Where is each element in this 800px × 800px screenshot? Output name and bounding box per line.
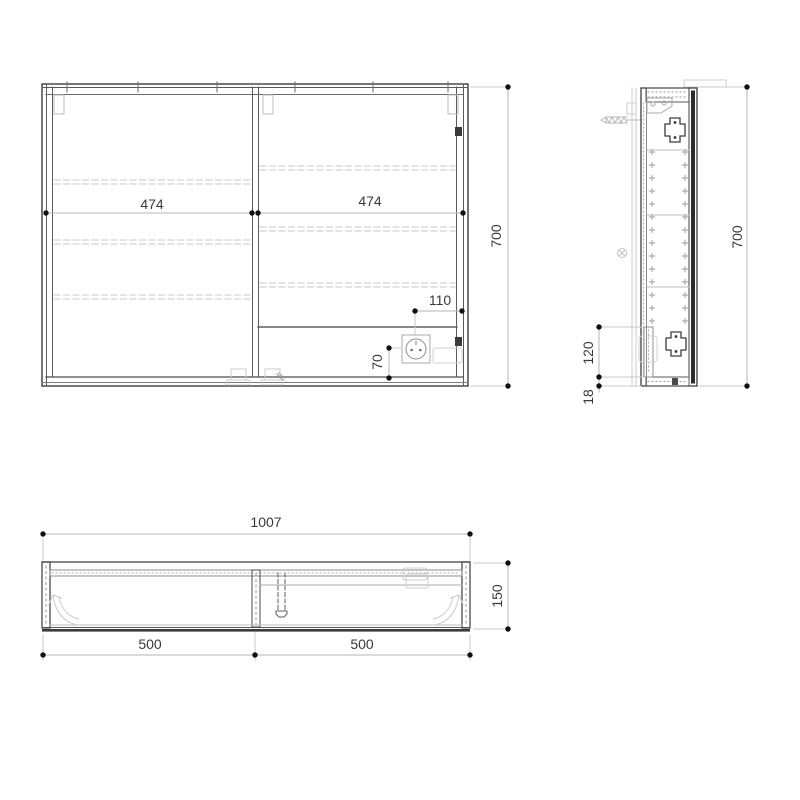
- drawing-linework: [0, 0, 800, 800]
- front-view: [42, 82, 511, 389]
- front-hinge-marks: [54, 95, 458, 114]
- side-cabinet-body: [641, 88, 697, 386]
- dim-label-front-socket-y: 70: [370, 352, 384, 372]
- front-dim-70: [386, 345, 400, 380]
- dim-label-top-depth: 150: [490, 582, 504, 609]
- power-cable-dashed: [276, 573, 287, 617]
- dim-label-top-total-width: 1007: [248, 515, 283, 529]
- side-dim-120-18: [596, 324, 644, 392]
- hinge-cross-icon-bottom: [666, 332, 686, 356]
- dim-label-side-height: 700: [730, 223, 744, 250]
- side-driver-box: [639, 327, 657, 377]
- side-shelf-pin-marks: [649, 149, 687, 323]
- socket-icon: [402, 335, 430, 363]
- front-cabinet-outline: [42, 84, 468, 386]
- front-dim-474-right: [255, 210, 465, 215]
- top-dim-500-pair: [40, 633, 472, 660]
- side-shelf-lines: [647, 150, 689, 287]
- screw-cross-icon: [618, 249, 627, 258]
- top-view: [40, 531, 510, 660]
- technical-drawing-canvas: 474 474 110 70 700 120 18 700 1007 500 5…: [0, 0, 800, 800]
- top-cabinet-outline: [42, 562, 470, 632]
- wall-anchor-icon: [601, 117, 641, 123]
- dim-label-front-height: 700: [489, 222, 503, 249]
- front-right-shelves-dashed: [260, 166, 455, 287]
- top-dim-1007: [40, 531, 472, 560]
- dim-label-top-right-500: 500: [348, 637, 375, 651]
- hinge-cross-icon-top: [665, 118, 685, 142]
- front-door-edges: [53, 87, 457, 377]
- dim-label-side-panel: 18: [581, 387, 595, 407]
- side-view: [596, 80, 749, 392]
- dim-label-front-socket-x: 110: [427, 293, 453, 307]
- door-swing-arrow-left: [49, 595, 79, 625]
- side-wall-lines: [627, 80, 726, 386]
- hanging-bracket-icon: [647, 98, 672, 113]
- dim-label-top-left-500: 500: [136, 637, 163, 651]
- switch-outline: [433, 348, 462, 363]
- door-swing-arrow-right: [433, 595, 463, 625]
- dim-label-front-width-left: 474: [138, 197, 165, 211]
- dim-label-front-width-right: 474: [356, 194, 383, 208]
- dim-label-side-compartment: 120: [581, 339, 595, 366]
